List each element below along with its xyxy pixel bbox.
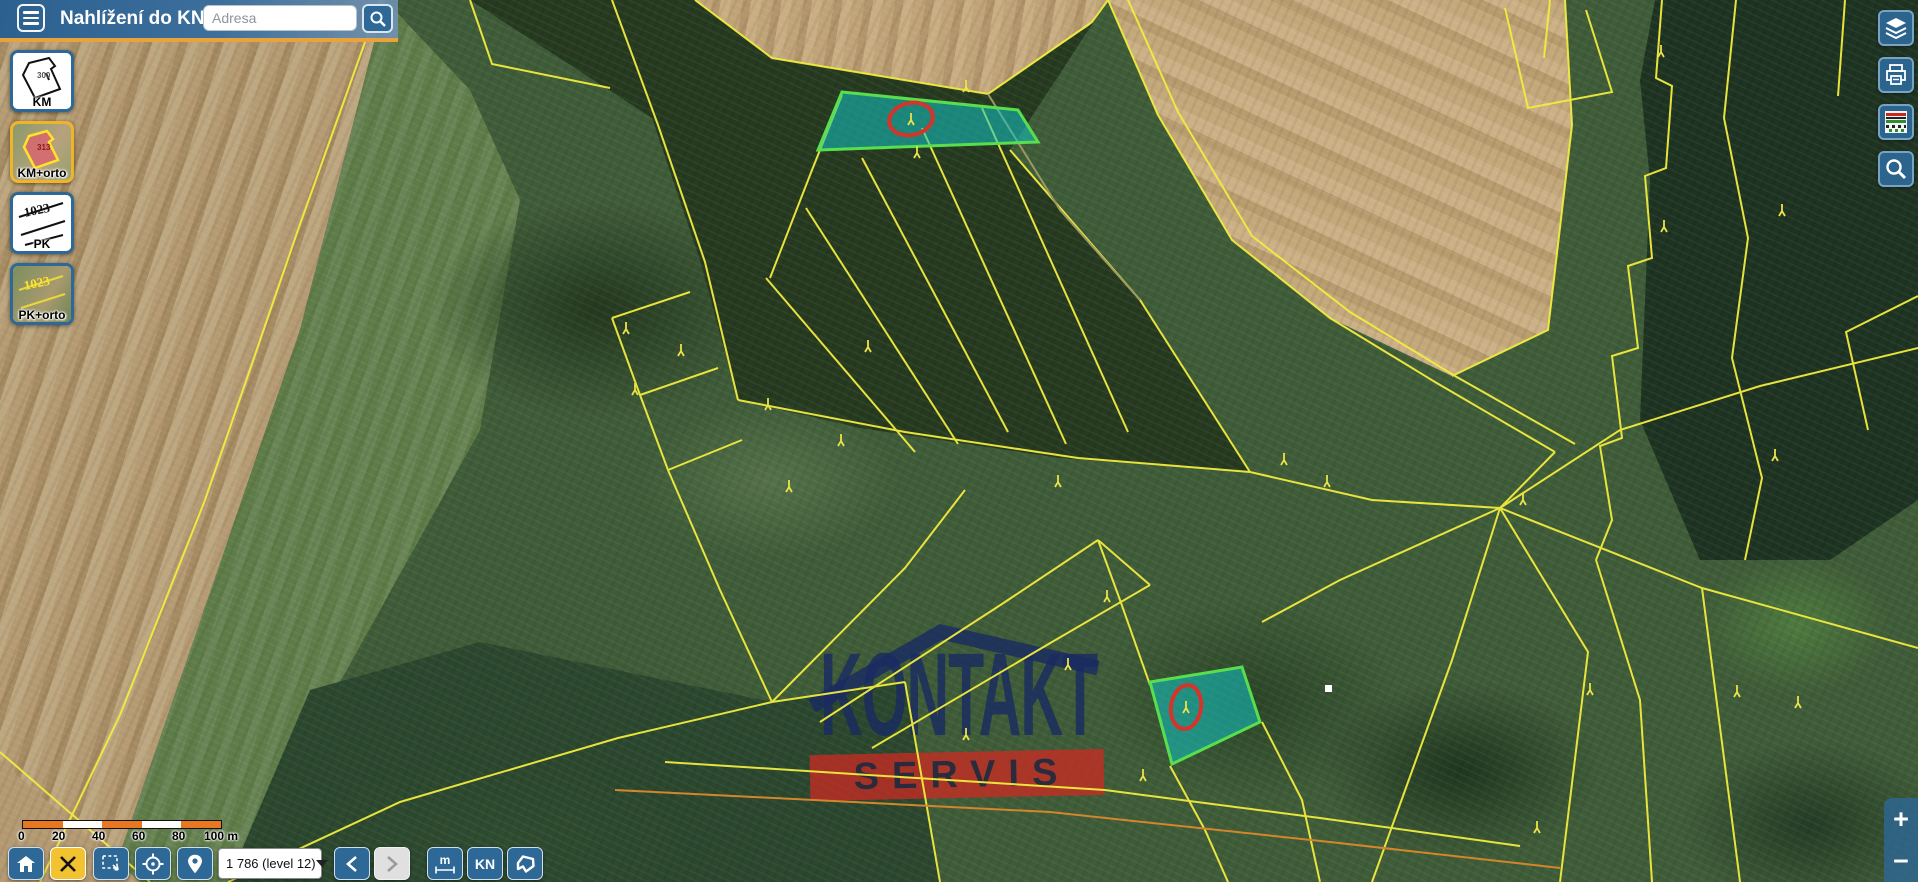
scale-bar — [22, 820, 222, 829]
search-button[interactable] — [362, 4, 393, 33]
polygon-icon — [514, 854, 536, 874]
polygon-select-button[interactable] — [507, 847, 543, 880]
chevron-down-icon — [316, 860, 328, 867]
layer-button-km-orto[interactable]: 313 KM+orto — [10, 121, 74, 183]
layers-icon — [1884, 16, 1908, 40]
legend-button[interactable] — [1878, 104, 1914, 140]
layer-label-pk-orto: PK+orto — [13, 308, 71, 322]
forward-button[interactable] — [374, 847, 410, 880]
home-button[interactable] — [8, 847, 44, 880]
kn-button-label: KN — [475, 856, 495, 872]
layer-button-pk-orto[interactable]: 1023 PK+orto — [10, 263, 74, 325]
close-icon — [59, 855, 77, 873]
layers-tool-button[interactable] — [1878, 10, 1914, 46]
svg-text:1023: 1023 — [23, 273, 52, 293]
scale-tick: 80 — [172, 829, 185, 843]
chevron-left-icon — [345, 855, 359, 873]
magnifier-icon — [369, 10, 387, 28]
layer-label-pk: PK — [13, 237, 71, 251]
parcel-overlay — [0, 0, 1918, 882]
kn-button[interactable]: KN — [467, 847, 503, 880]
scale-tick: 0 — [18, 829, 25, 843]
select-area-icon — [101, 854, 121, 874]
svg-text:m: m — [440, 853, 451, 867]
crosshair-icon — [142, 853, 164, 875]
location-pin-button[interactable] — [177, 847, 213, 880]
zoom-out-button[interactable]: − — [1884, 840, 1918, 882]
layer-button-km[interactable]: 300 KM — [10, 50, 74, 112]
chevron-right-icon — [385, 855, 399, 873]
location-pin-icon — [187, 854, 203, 874]
select-area-button[interactable] — [93, 847, 129, 880]
watermark-roof — [812, 632, 1098, 706]
print-button[interactable] — [1878, 57, 1914, 93]
back-button[interactable] — [334, 847, 370, 880]
scale-tick: 60 — [132, 829, 145, 843]
scale-select-value: 1 786 (level 12) — [219, 856, 316, 871]
zoom-search-icon — [1884, 157, 1908, 181]
boundary-line-orange — [615, 790, 1560, 868]
header-underline — [0, 38, 398, 42]
search-input[interactable] — [203, 5, 357, 31]
center-map-button[interactable] — [135, 847, 171, 880]
scale-tick: 40 — [92, 829, 105, 843]
layer-label-km-orto: KM+orto — [13, 166, 71, 180]
measure-icon: m — [434, 853, 456, 875]
highlighted-parcel-2[interactable] — [1150, 667, 1260, 764]
map-canvas[interactable]: KONTAKT SERVIS — [0, 0, 1918, 882]
scale-select[interactable]: 1 786 (level 12) — [218, 848, 322, 879]
layer-button-pk[interactable]: 1023 PK — [10, 192, 74, 254]
map-marker-dot — [1325, 685, 1332, 692]
legend-icon — [1884, 111, 1908, 133]
cancel-selection-button[interactable] — [50, 847, 86, 880]
zoom-control: + − — [1884, 798, 1918, 882]
hamburger-icon — [23, 11, 39, 14]
scale-tick: 20 — [52, 829, 65, 843]
zoom-search-button[interactable] — [1878, 151, 1914, 187]
home-icon — [16, 855, 36, 873]
highlighted-parcel-1[interactable] — [818, 92, 1038, 150]
print-icon — [1884, 63, 1908, 87]
measure-button[interactable]: m — [427, 847, 463, 880]
zoom-in-button[interactable]: + — [1884, 798, 1918, 840]
layer-label-km: KM — [13, 95, 71, 109]
svg-text:1023: 1023 — [23, 200, 52, 220]
menu-button[interactable] — [17, 4, 45, 32]
scale-tick: 100 m — [204, 829, 238, 843]
page-title: Nahlížení do KN — [60, 0, 205, 38]
